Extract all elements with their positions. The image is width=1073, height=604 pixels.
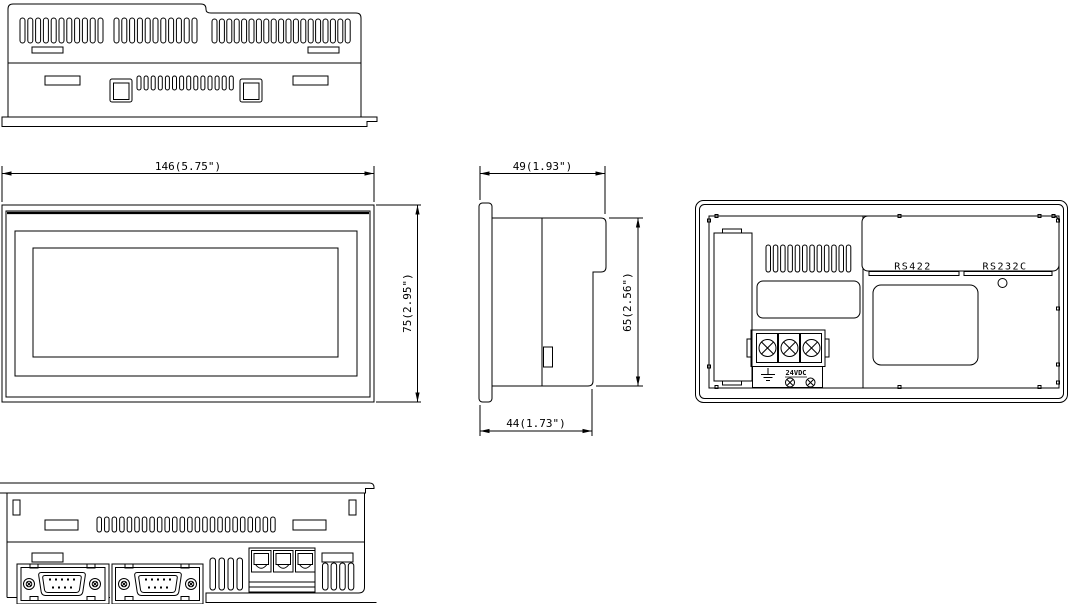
side-dimensions: 49(1.93") 65(2.56") 44(1.73") (480, 160, 643, 436)
bottom-view (0, 483, 377, 604)
dim-side-body-depth: 44(1.73") (506, 417, 566, 430)
bottom-corner-slot-right (349, 500, 356, 515)
bottom-vent-slots (97, 517, 275, 532)
rear-screw-hole (998, 279, 1007, 288)
battery-compartment (714, 229, 752, 385)
terminal-screw-icon (781, 340, 798, 357)
side-view (479, 203, 606, 402)
top-lower-plate-left (45, 76, 80, 85)
dim-side-height: 65(2.56") (621, 272, 634, 332)
rs422-label: RS422 (894, 262, 932, 273)
power-label: 24VDC (785, 369, 806, 377)
com-port-1 (17, 564, 109, 604)
rs232c-label: RS232C (982, 262, 1027, 273)
rs422-port-slot (869, 272, 959, 276)
power-screw-icon (786, 378, 795, 387)
top-mount-button-left (110, 79, 132, 102)
bottom-terminal-block (249, 548, 315, 592)
dim-front-height: 75(2.95") (401, 273, 414, 333)
bottom-lower-plate-left (32, 553, 63, 562)
side-latch-detail (544, 347, 553, 367)
dim-front-width: 146(5.75") (155, 160, 221, 173)
rear-label-area (757, 281, 860, 318)
front-display-frame (15, 231, 357, 376)
side-bezel-flange (479, 203, 492, 402)
technical-drawing-page: 146(5.75") 75(2.95") 49(1.93") 65(2.56")… (0, 0, 1073, 604)
top-lower-plate-right (293, 76, 328, 85)
rs232c-port-slot (964, 272, 1052, 276)
panel-dimension-drawing: 146(5.75") 75(2.95") 49(1.93") 65(2.56")… (0, 0, 1073, 604)
top-vent-slots-middle (114, 18, 197, 43)
front-view (2, 205, 374, 402)
power-screw-icon (806, 378, 815, 387)
top-mount-button-right (240, 79, 262, 102)
rear-vent-slots (766, 245, 851, 272)
top-slot-plate-right (308, 47, 339, 53)
terminal-screw-icon (759, 340, 776, 357)
bottom-plate-right (293, 520, 326, 530)
front-dimensions: 146(5.75") 75(2.95") (2, 160, 421, 402)
terminal-screw-icon (803, 340, 820, 357)
bottom-lower-plate-right (322, 553, 353, 562)
ground-icon (761, 368, 775, 381)
dim-side-depth: 49(1.93") (513, 160, 573, 173)
front-outer-frame (2, 205, 374, 402)
top-connector-slots (137, 76, 233, 90)
top-view (2, 4, 377, 127)
top-vent-slots-left (20, 18, 103, 43)
rear-port-cover (862, 216, 1059, 271)
bottom-corner-slot-left (13, 500, 20, 515)
top-bezel-lip (2, 117, 377, 127)
side-body-outline (492, 218, 606, 386)
front-bezel-frame (6, 211, 370, 397)
rear-view: 24VDC RS422 RS232C (696, 201, 1068, 403)
bottom-slots-right (323, 563, 354, 590)
com-port-2 (112, 564, 203, 604)
rear-access-panel (873, 285, 978, 365)
top-slot-plate-left (32, 47, 63, 53)
bottom-slots-mid (210, 558, 243, 590)
bottom-bezel-lip (0, 483, 374, 493)
bottom-plate-left (45, 520, 78, 530)
front-screen (33, 248, 338, 357)
top-vent-slots-right (212, 19, 350, 43)
